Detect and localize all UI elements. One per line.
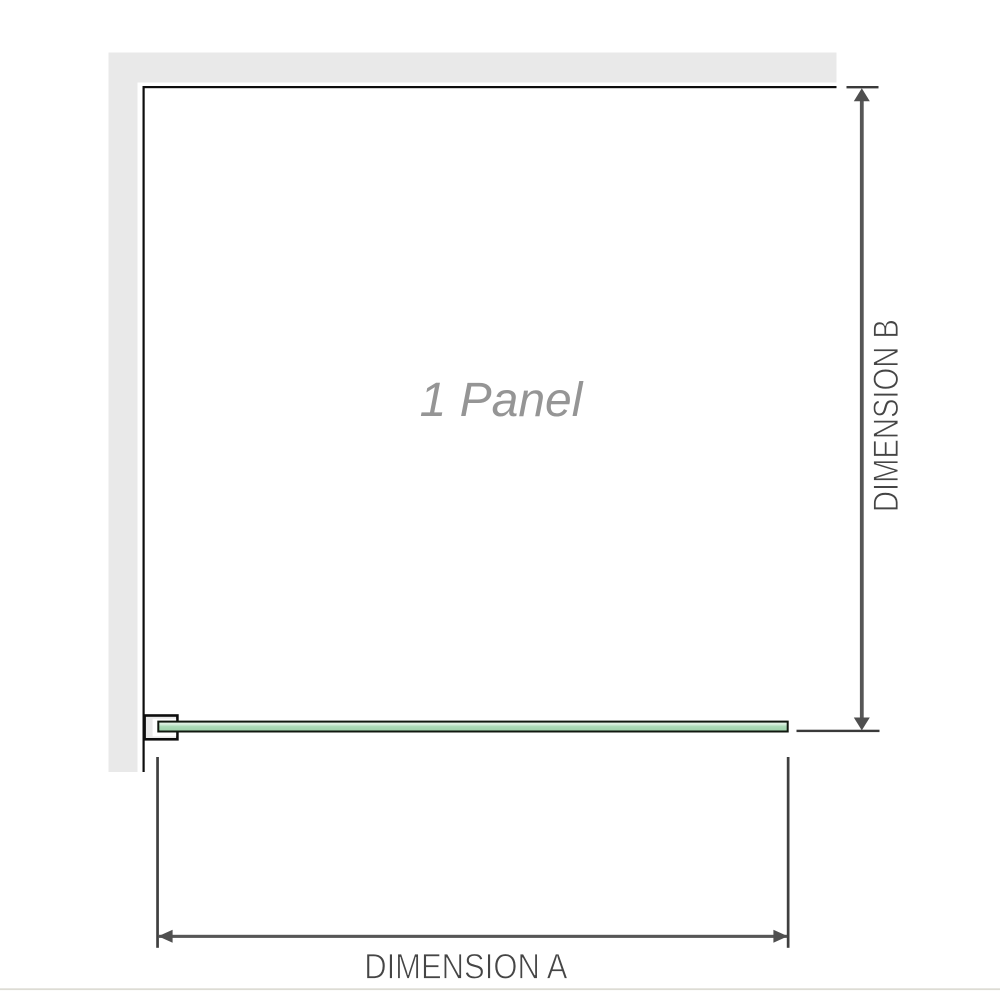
svg-text:DIMENSION B: DIMENSION B: [866, 319, 905, 512]
svg-text:1 Panel: 1 Panel: [420, 374, 584, 427]
svg-text:DIMENSION A: DIMENSION A: [364, 948, 567, 987]
